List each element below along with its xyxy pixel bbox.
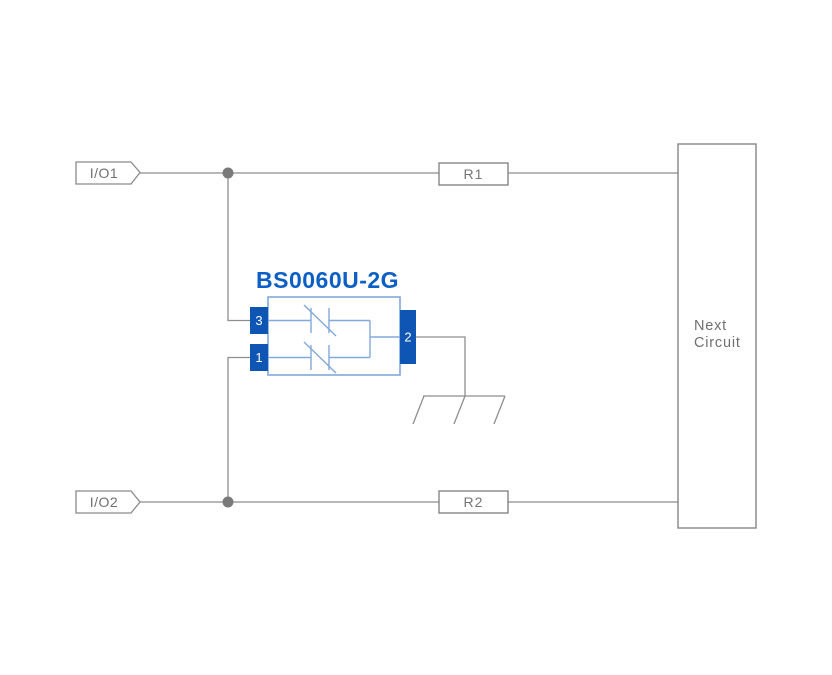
component-body: [268, 297, 400, 375]
resistor-r1: R1: [439, 163, 508, 185]
pin-2: 2: [400, 310, 416, 364]
io1-tag: I/O1: [76, 162, 140, 184]
wire-junction1-to-pin3: [228, 173, 250, 321]
circuit-schematic: I/O1 I/O2 R1 R2 Next Circuit BS0060U-2G: [0, 0, 832, 675]
esd-component: BS0060U-2G 3 1: [250, 267, 416, 375]
next-circuit-label-line1: Next: [694, 318, 727, 334]
io2-tag: I/O2: [76, 491, 140, 513]
io2-label: I/O2: [90, 494, 118, 510]
junction-dot-top: [223, 168, 234, 179]
wire-pin2-to-ground: [416, 337, 465, 396]
pin-3: 3: [250, 307, 268, 334]
resistor-r1-label: R1: [464, 166, 484, 182]
schematic-canvas: I/O1 I/O2 R1 R2 Next Circuit BS0060U-2G: [0, 0, 832, 675]
resistor-r2-label: R2: [464, 494, 484, 510]
ground-slash-left: [413, 396, 424, 424]
pin-3-label: 3: [255, 313, 262, 328]
wire-pin1-to-junction2: [228, 358, 250, 503]
io1-label: I/O1: [90, 165, 118, 181]
resistor-r2: R2: [439, 491, 508, 513]
ground-slash-right: [494, 396, 505, 424]
component-part-number: BS0060U-2G: [256, 267, 399, 293]
next-circuit-block: Next Circuit: [678, 144, 756, 528]
pin-1-label: 1: [255, 350, 262, 365]
junction-dot-bottom: [223, 497, 234, 508]
pin-1: 1: [250, 344, 268, 371]
ground-symbol: [413, 396, 505, 424]
pin-2-label: 2: [404, 330, 411, 345]
ground-slash-middle: [454, 396, 465, 424]
next-circuit-label-line2: Circuit: [694, 335, 741, 351]
